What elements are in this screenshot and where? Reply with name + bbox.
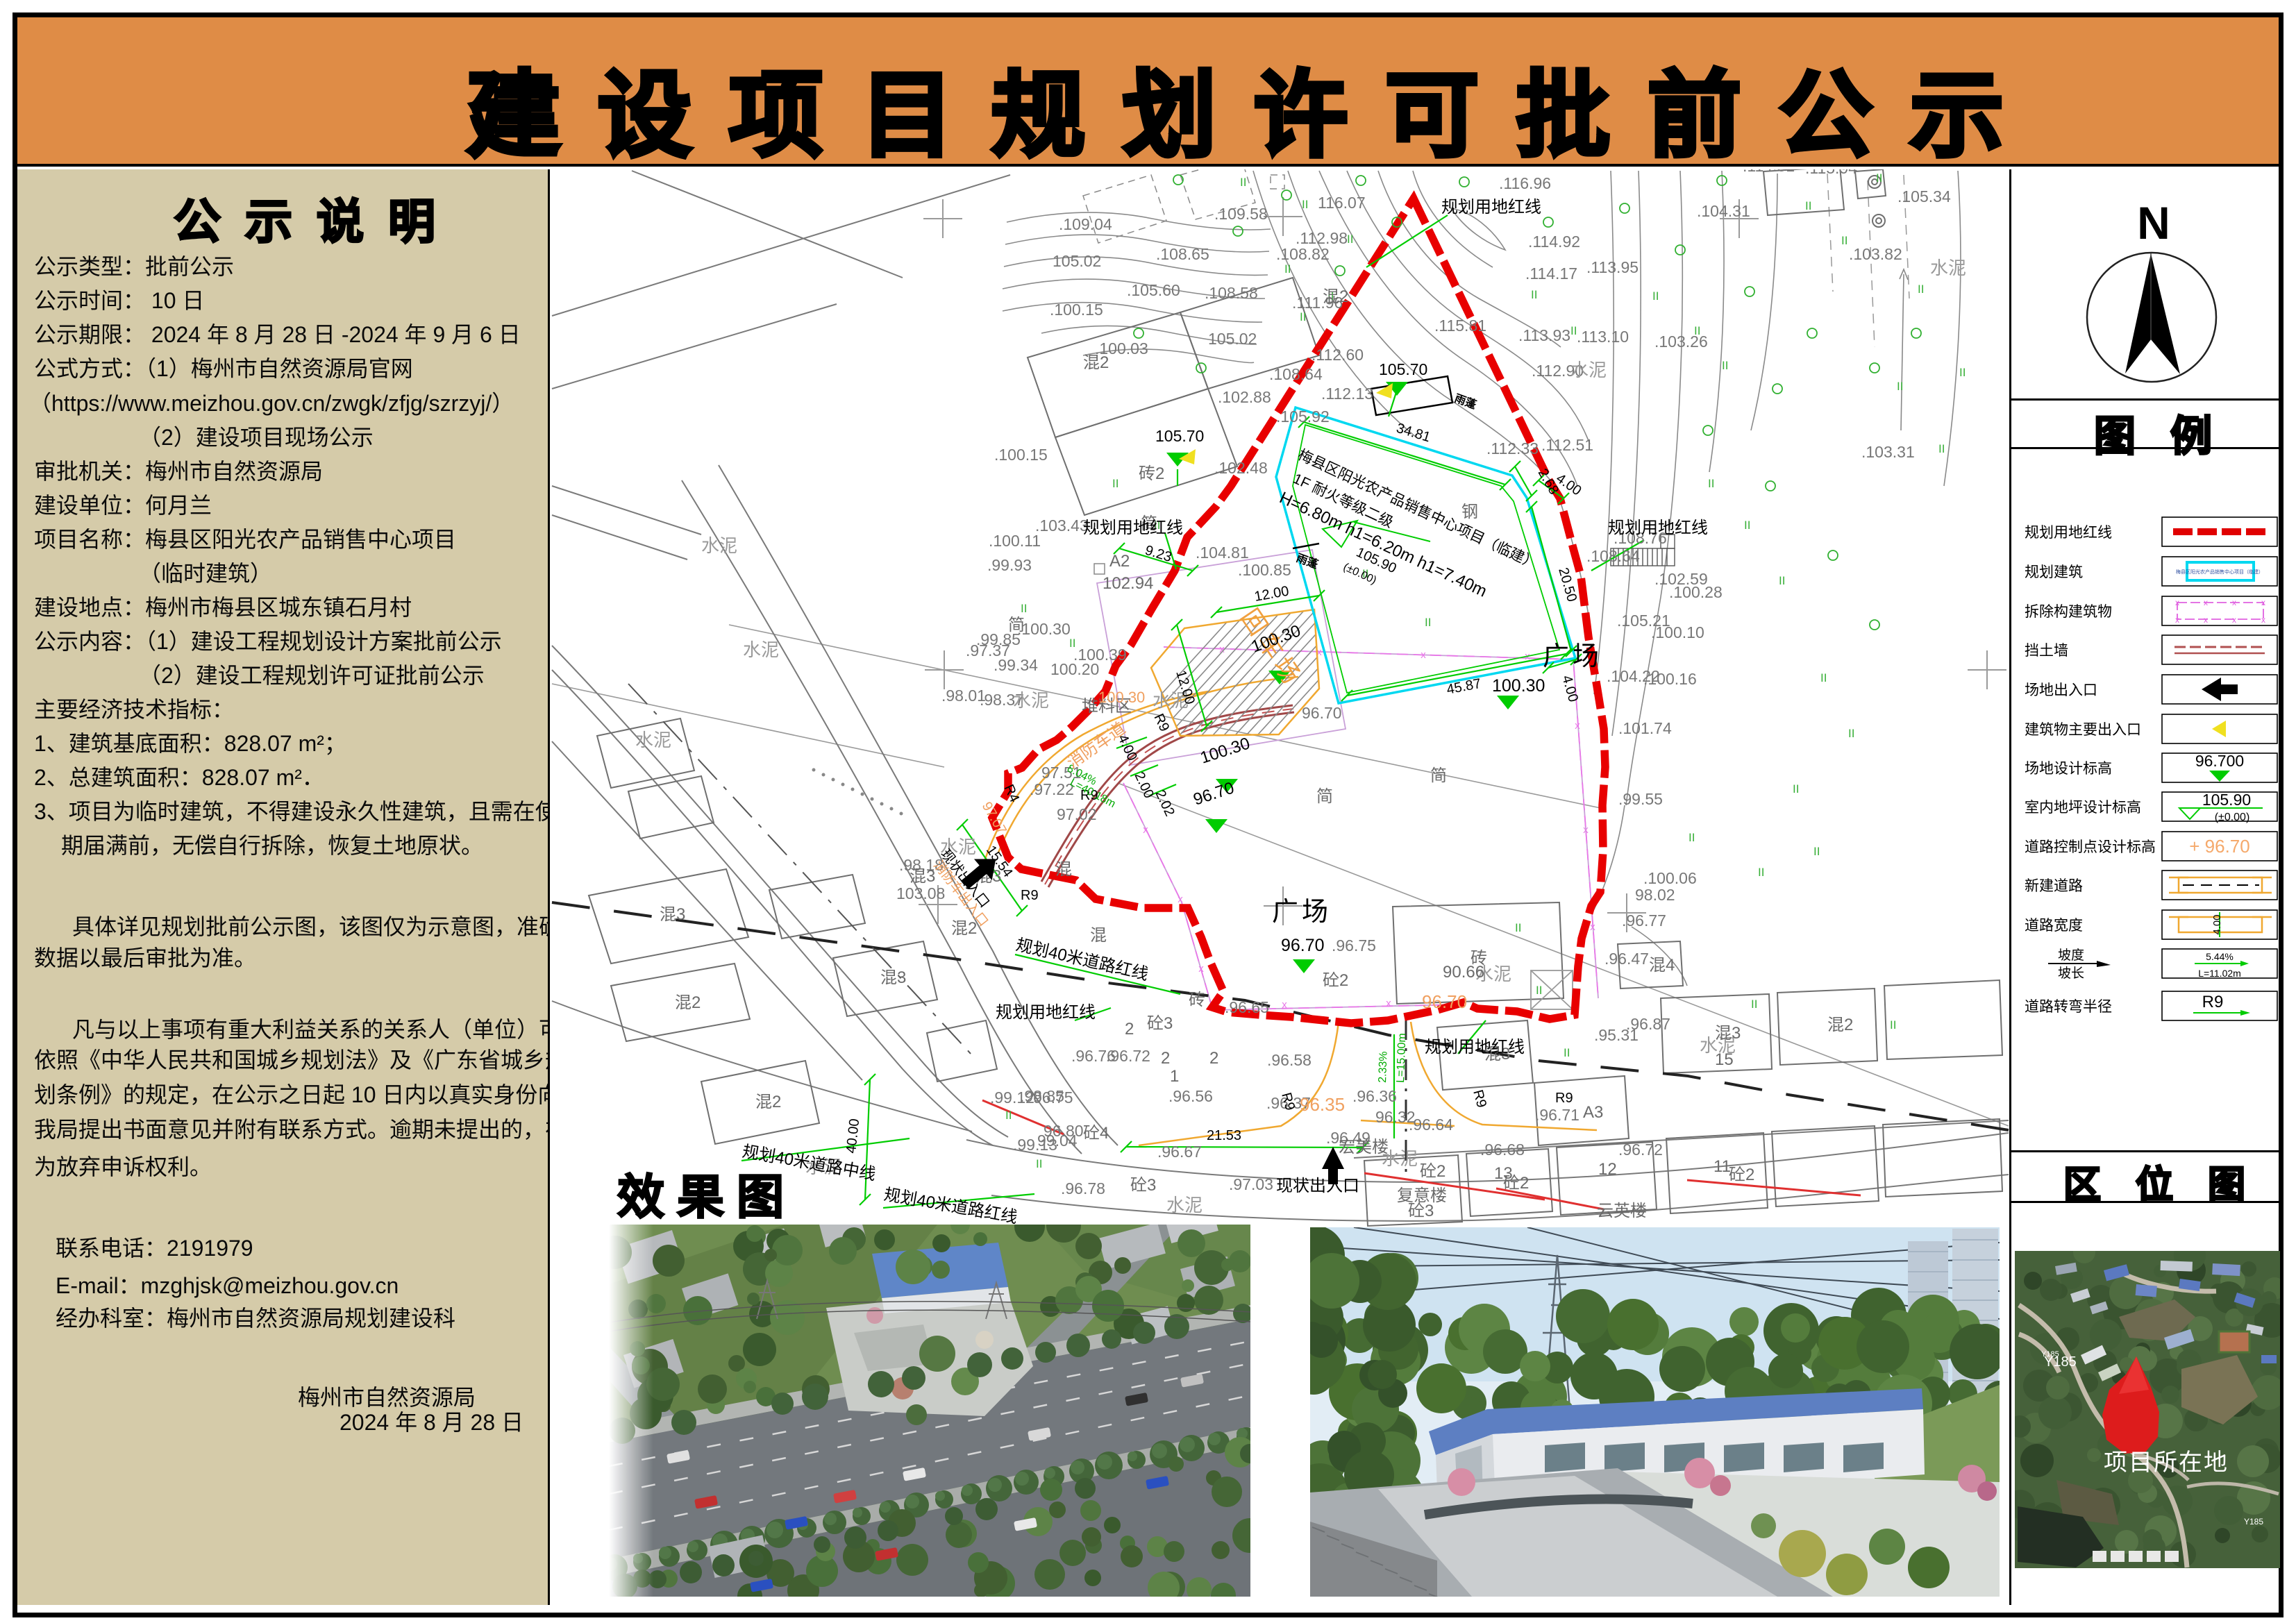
- svg-text:建筑物主要出入口: 建筑物主要出入口: [2025, 722, 2141, 738]
- svg-text:简: 简: [1316, 787, 1333, 806]
- svg-text:II: II: [1758, 866, 1764, 879]
- svg-text:砼2: 砼2: [1323, 971, 1348, 990]
- svg-text:规划用地红线: 规划用地红线: [1441, 198, 1541, 217]
- svg-text:.97.03: .97.03: [1229, 1175, 1273, 1193]
- svg-text:II: II: [1515, 921, 1521, 934]
- svg-text:规划用地红线: 规划用地红线: [1425, 1038, 1525, 1057]
- svg-text:水泥: 水泥: [1570, 360, 1607, 380]
- svg-text:x: x: [2204, 615, 2208, 625]
- svg-text:.100.30: .100.30: [1017, 620, 1071, 638]
- svg-text:105.70: 105.70: [1155, 427, 1204, 445]
- svg-text:90.66: 90.66: [1443, 963, 1484, 982]
- svg-text:x: x: [1143, 824, 1148, 836]
- svg-text:混2: 混2: [1827, 1016, 1853, 1034]
- svg-text:II: II: [1021, 602, 1027, 615]
- svg-text:II: II: [1694, 324, 1700, 337]
- svg-text:II: II: [1918, 283, 1924, 296]
- svg-text:.113.10: .113.10: [1577, 328, 1629, 346]
- svg-text:.96.68: .96.68: [1480, 1141, 1525, 1159]
- svg-text:混4: 混4: [1649, 956, 1675, 975]
- svg-text:105.02: 105.02: [1053, 252, 1101, 270]
- svg-text:2.33%: 2.33%: [1377, 1051, 1390, 1083]
- svg-text:105.02: 105.02: [1208, 330, 1257, 348]
- svg-text:.114.73: .114.73: [1577, 169, 1629, 173]
- svg-text:11: 11: [1713, 1157, 1731, 1176]
- svg-text:x: x: [2261, 598, 2265, 607]
- svg-text:II: II: [1347, 233, 1353, 246]
- svg-text:砖2: 砖2: [1139, 464, 1164, 483]
- svg-text:2: 2: [1209, 1049, 1218, 1068]
- svg-text:II: II: [1813, 845, 1820, 858]
- svg-text:.112.60: .112.60: [1312, 346, 1364, 364]
- svg-text:II: II: [1112, 477, 1118, 490]
- svg-text:新建道路: 新建道路: [2025, 878, 2083, 894]
- svg-text:混3: 混3: [1715, 1024, 1741, 1043]
- svg-text:(±0.00): (±0.00): [2215, 811, 2250, 823]
- svg-text:L=15.00m: L=15.00m: [1395, 1033, 1408, 1083]
- svg-text:水泥: 水泥: [743, 639, 779, 660]
- svg-text:.115.81: .115.81: [1434, 317, 1486, 335]
- svg-text:.104.81: .104.81: [1196, 544, 1249, 562]
- svg-text:混3: 混3: [880, 968, 906, 987]
- svg-text:.96.65: .96.65: [1225, 998, 1269, 1016]
- svg-text:.116.96: .116.96: [1499, 174, 1551, 192]
- svg-text:103.08: 103.08: [896, 884, 945, 902]
- svg-text:II: II: [1708, 477, 1714, 490]
- svg-text:96.70: 96.70: [1422, 991, 1467, 1012]
- svg-text:规划用地红线: 规划用地红线: [996, 1003, 1096, 1022]
- svg-text:砼3: 砼3: [1147, 1014, 1173, 1033]
- svg-text:混2: 混2: [675, 993, 701, 1012]
- svg-text:II: II: [1300, 310, 1306, 323]
- svg-text:.96.75: .96.75: [1332, 936, 1376, 955]
- svg-text:.105.34: .105.34: [1897, 187, 1951, 205]
- svg-text:R9: R9: [1150, 712, 1172, 734]
- svg-text:.98.85: .98.85: [1020, 1087, 1064, 1105]
- svg-text:x: x: [2175, 615, 2179, 625]
- svg-text:2: 2: [1161, 1049, 1170, 1068]
- svg-text:.96.67: .96.67: [1157, 1143, 1202, 1161]
- svg-text:II: II: [1876, 171, 1882, 185]
- svg-text:简: 简: [1008, 616, 1025, 634]
- svg-text:R9: R9: [2202, 993, 2224, 1011]
- svg-text:105.90: 105.90: [2202, 791, 2251, 809]
- svg-text:水泥: 水泥: [635, 730, 671, 750]
- svg-text:挡土墙: 挡土墙: [2025, 643, 2068, 659]
- svg-text:.104.31: .104.31: [1697, 202, 1750, 220]
- svg-text:II: II: [1897, 380, 1903, 393]
- svg-text:现状出入口: 现状出入口: [1276, 1177, 1359, 1195]
- svg-text:坡度: 坡度: [2058, 948, 2084, 963]
- svg-text:混: 混: [1090, 926, 1107, 945]
- svg-text:水泥: 水泥: [1166, 1195, 1203, 1216]
- svg-text:II: II: [1959, 366, 1966, 379]
- svg-text:.113.95: .113.95: [1586, 258, 1639, 276]
- svg-text:.100.16: .100.16: [1643, 670, 1697, 688]
- svg-text:.96.72: .96.72: [1618, 1141, 1663, 1159]
- svg-text:广场: 广场: [1543, 642, 1602, 671]
- svg-text:x: x: [1590, 921, 1595, 933]
- svg-text:x: x: [2204, 598, 2208, 607]
- svg-text:II: II: [1890, 1018, 1896, 1032]
- svg-text:水泥: 水泥: [1013, 690, 1049, 711]
- svg-text:x: x: [1583, 824, 1589, 836]
- svg-text:.96.56: .96.56: [1168, 1087, 1213, 1105]
- svg-text:II: II: [1751, 998, 1757, 1011]
- svg-text:.115.94: .115.94: [1805, 169, 1857, 177]
- svg-text:x: x: [1198, 963, 1204, 975]
- svg-text:.103.31: .103.31: [1861, 443, 1915, 461]
- svg-text:96.70: 96.70: [1281, 936, 1325, 955]
- svg-text:.96.71: .96.71: [1535, 1106, 1579, 1124]
- svg-text:116.07: 116.07: [1318, 194, 1366, 212]
- svg-text:II: II: [1820, 671, 1827, 684]
- svg-text:x: x: [2232, 598, 2236, 607]
- svg-text:梅县区阳光农产品销售中心项目（临建）: 梅县区阳光农产品销售中心项目（临建）: [2176, 569, 2263, 575]
- svg-text:2: 2: [1125, 1020, 1134, 1038]
- svg-text:水泥: 水泥: [701, 535, 737, 556]
- svg-text:97.07: 97.07: [979, 800, 1009, 837]
- svg-text:40.00: 40.00: [844, 1118, 862, 1154]
- svg-text:坡长: 坡长: [2058, 966, 2084, 981]
- svg-text:.101.74: .101.74: [1618, 719, 1672, 737]
- svg-text:L=11.02m: L=11.02m: [2198, 968, 2241, 979]
- svg-text:.100.06: .100.06: [1643, 869, 1697, 887]
- svg-text:.99.55: .99.55: [1618, 790, 1663, 808]
- svg-text:宏美楼: 宏美楼: [1339, 1138, 1389, 1157]
- svg-text:100.30: 100.30: [1098, 689, 1145, 706]
- svg-text:道路控制点设计标高: 道路控制点设计标高: [2025, 839, 2156, 855]
- svg-text:x: x: [1386, 998, 1391, 1009]
- svg-text:II: II: [1069, 637, 1075, 650]
- svg-text:云英楼: 云英楼: [1597, 1202, 1647, 1220]
- svg-text:II: II: [1793, 782, 1799, 796]
- svg-text:.102.88: .102.88: [1218, 388, 1271, 406]
- svg-text:混2: 混2: [951, 919, 977, 938]
- svg-text:x: x: [1178, 893, 1183, 905]
- svg-text:.108.64: .108.64: [1269, 365, 1323, 383]
- svg-text:砼2: 砼2: [1420, 1162, 1446, 1181]
- svg-text:雨蓬: 雨蓬: [1295, 551, 1321, 571]
- svg-text:室内地坪设计标高: 室内地坪设计标高: [2025, 800, 2141, 816]
- svg-text:规划建筑: 规划建筑: [2025, 564, 2083, 580]
- svg-text:21.53: 21.53: [1207, 1128, 1241, 1143]
- svg-text:96.32: 96.32: [1375, 1108, 1416, 1126]
- svg-text:96.35: 96.35: [1300, 1094, 1345, 1115]
- svg-text:II: II: [1036, 1157, 1042, 1170]
- svg-text:II: II: [1744, 519, 1750, 532]
- svg-text:砼4: 砼4: [1083, 1124, 1109, 1143]
- svg-text:A2: A2: [1109, 552, 1130, 571]
- svg-text:96.70: 96.70: [1191, 778, 1237, 809]
- svg-text:.95.31: .95.31: [1594, 1026, 1639, 1044]
- svg-text:.114.92: .114.92: [1528, 233, 1580, 251]
- svg-text:x: x: [1575, 720, 1580, 732]
- svg-text:拆除构建筑物: 拆除构建筑物: [2025, 604, 2112, 620]
- svg-text:.96.72: .96.72: [1106, 1047, 1150, 1065]
- svg-text:2.02: 2.02: [1152, 788, 1177, 819]
- svg-text:x: x: [2261, 615, 2265, 625]
- svg-text:II: II: [1722, 359, 1728, 372]
- svg-text:砼3: 砼3: [1130, 1176, 1156, 1195]
- svg-text:规划40米道路红线: 规划40米道路红线: [882, 1185, 1019, 1227]
- svg-text:II: II: [1570, 324, 1577, 337]
- svg-text:.108.82: .108.82: [1276, 245, 1330, 263]
- svg-text:混2: 混2: [1323, 287, 1348, 306]
- svg-text:II: II: [1938, 442, 1945, 455]
- svg-text:.112.13: .112.13: [1321, 385, 1373, 403]
- svg-text:场地设计标高: 场地设计标高: [2025, 761, 2112, 777]
- svg-text:.108.65: .108.65: [1156, 245, 1209, 263]
- svg-text:II: II: [1531, 288, 1537, 301]
- svg-text:混2: 混2: [1083, 353, 1109, 372]
- svg-text:N: N: [2137, 197, 2170, 249]
- svg-text:+ 96.70: + 96.70: [2189, 836, 2249, 857]
- svg-text:4.00: 4.00: [2211, 914, 2223, 934]
- svg-text:Y185: Y185: [2041, 1350, 2059, 1359]
- svg-text:.99.93: .99.93: [987, 556, 1032, 574]
- svg-text:97.02: 97.02: [1057, 805, 1097, 823]
- svg-text:.100.11: .100.11: [989, 532, 1041, 550]
- svg-text:100.30: 100.30: [1492, 676, 1545, 696]
- svg-text:.100.39: .100.39: [1073, 646, 1127, 664]
- svg-text:Y185: Y185: [2244, 1517, 2263, 1527]
- svg-text:x: x: [1282, 999, 1287, 1011]
- svg-text:x: x: [2232, 615, 2236, 625]
- svg-text:45.87: 45.87: [1446, 676, 1482, 698]
- svg-text:雨蓬: 雨蓬: [1453, 392, 1480, 412]
- svg-text:II: II: [1652, 289, 1659, 303]
- svg-text:102.94: 102.94: [1103, 574, 1153, 593]
- svg-text:.113.93: .113.93: [1518, 326, 1570, 344]
- svg-text:规划用地红线: 规划用地红线: [1083, 519, 1183, 537]
- svg-text:.100.28: .100.28: [1669, 583, 1723, 601]
- svg-text:II: II: [1005, 1109, 1012, 1122]
- svg-text:.96.64: .96.64: [1409, 1116, 1453, 1134]
- svg-text:.112.98: .112.98: [1296, 229, 1348, 247]
- svg-text:R4: R4: [1000, 782, 1022, 805]
- svg-text:.105.60: .105.60: [1127, 281, 1180, 299]
- svg-text:.96.78: .96.78: [1061, 1179, 1105, 1197]
- svg-text:R9: R9: [1555, 1091, 1573, 1106]
- svg-text:.99.13: .99.13: [1013, 1136, 1057, 1154]
- svg-text:.96.58: .96.58: [1267, 1051, 1312, 1069]
- svg-text:105.70: 105.70: [1379, 360, 1427, 378]
- svg-text:.108.64: .108.64: [1586, 547, 1640, 565]
- svg-text:混3: 混3: [910, 867, 935, 886]
- svg-text:100.30: 100.30: [1198, 734, 1252, 767]
- svg-text:x: x: [2175, 598, 2179, 607]
- svg-text:钢: 钢: [1461, 503, 1478, 521]
- svg-text:II: II: [1689, 831, 1695, 844]
- svg-text:.103.43: .103.43: [1035, 516, 1089, 535]
- svg-text:.108.58: .108.58: [1205, 284, 1258, 302]
- svg-text:.105.92: .105.92: [1276, 407, 1330, 426]
- svg-text:II: II: [1425, 616, 1431, 629]
- svg-text:96.700: 96.700: [2195, 752, 2244, 770]
- svg-text:规划用地红线: 规划用地红线: [1608, 519, 1708, 537]
- svg-text:.102.48: .102.48: [1214, 459, 1268, 477]
- svg-text:II: II: [1779, 574, 1785, 587]
- svg-text:.100.85: .100.85: [1238, 561, 1291, 579]
- svg-text:.112.51: .112.51: [1541, 436, 1593, 454]
- svg-text:砖: 砖: [1189, 991, 1205, 1009]
- svg-text:4.00: 4.00: [1559, 673, 1581, 703]
- svg-text:12: 12: [1598, 1160, 1617, 1179]
- svg-text:II: II: [1536, 984, 1542, 997]
- svg-text:R9: R9: [1021, 888, 1039, 903]
- svg-text:96.70: 96.70: [1302, 704, 1342, 722]
- svg-text:.98.01: .98.01: [941, 687, 986, 705]
- svg-text:规划用地红线: 规划用地红线: [2025, 525, 2112, 541]
- svg-text:.103.82: .103.82: [1849, 245, 1902, 263]
- svg-text:砼2: 砼2: [1729, 1166, 1754, 1184]
- svg-text:II: II: [1805, 199, 1811, 212]
- svg-text:.109.04: .109.04: [1059, 215, 1112, 233]
- svg-text:1: 1: [1170, 1067, 1179, 1086]
- svg-text:广场: 广场: [1272, 898, 1332, 927]
- svg-text:.100.15: .100.15: [1050, 301, 1103, 319]
- svg-text:II: II: [1564, 1046, 1570, 1059]
- svg-text:.109.58: .109.58: [1214, 205, 1268, 223]
- svg-text:混: 混: [1055, 860, 1072, 879]
- svg-text:.114.17: .114.17: [1525, 264, 1577, 283]
- svg-text:.96.47: .96.47: [1604, 950, 1649, 968]
- svg-text:混3: 混3: [660, 905, 685, 924]
- svg-text:水泥: 水泥: [1930, 258, 1966, 278]
- svg-text:简: 简: [1430, 766, 1447, 785]
- svg-text:15: 15: [1715, 1050, 1734, 1069]
- svg-text:道路宽度: 道路宽度: [2025, 918, 2083, 934]
- svg-text:.111.73: .111.73: [1143, 169, 1194, 173]
- svg-text:.114.31: .114.31: [1743, 169, 1795, 175]
- svg-text:.100.15: .100.15: [994, 446, 1048, 464]
- svg-text:.97.37: .97.37: [966, 641, 1010, 659]
- svg-text:混2: 混2: [755, 1093, 781, 1111]
- svg-text:A3: A3: [1583, 1103, 1603, 1122]
- svg-text:II: II: [1240, 176, 1246, 189]
- svg-text:项目所在地: 项目所在地: [2104, 1449, 2229, 1476]
- svg-text:.96.77: .96.77: [1622, 911, 1666, 930]
- svg-text:98.02: 98.02: [1635, 886, 1675, 904]
- svg-text:.97.22: .97.22: [1030, 780, 1074, 798]
- svg-text:x: x: [1421, 649, 1426, 661]
- svg-text:场地出入口: 场地出入口: [2025, 682, 2097, 698]
- svg-text:II: II: [1302, 198, 1308, 211]
- svg-text:II: II: [1848, 727, 1854, 740]
- svg-text:效果图: 效果图: [617, 1171, 796, 1224]
- svg-text:道路转弯半径: 道路转弯半径: [2025, 999, 2112, 1015]
- svg-text:.100.10: .100.10: [1651, 623, 1704, 641]
- svg-text:II: II: [1284, 262, 1291, 276]
- svg-text:.96.36: .96.36: [1352, 1087, 1397, 1105]
- svg-text:R9: R9: [1470, 1088, 1489, 1109]
- svg-text:II: II: [1841, 234, 1847, 247]
- svg-text:13: 13: [1494, 1164, 1513, 1183]
- svg-text:.112.33: .112.33: [1486, 439, 1539, 457]
- svg-text:5.44%: 5.44%: [2206, 951, 2234, 962]
- svg-text:复意楼: 复意楼: [1397, 1186, 1447, 1205]
